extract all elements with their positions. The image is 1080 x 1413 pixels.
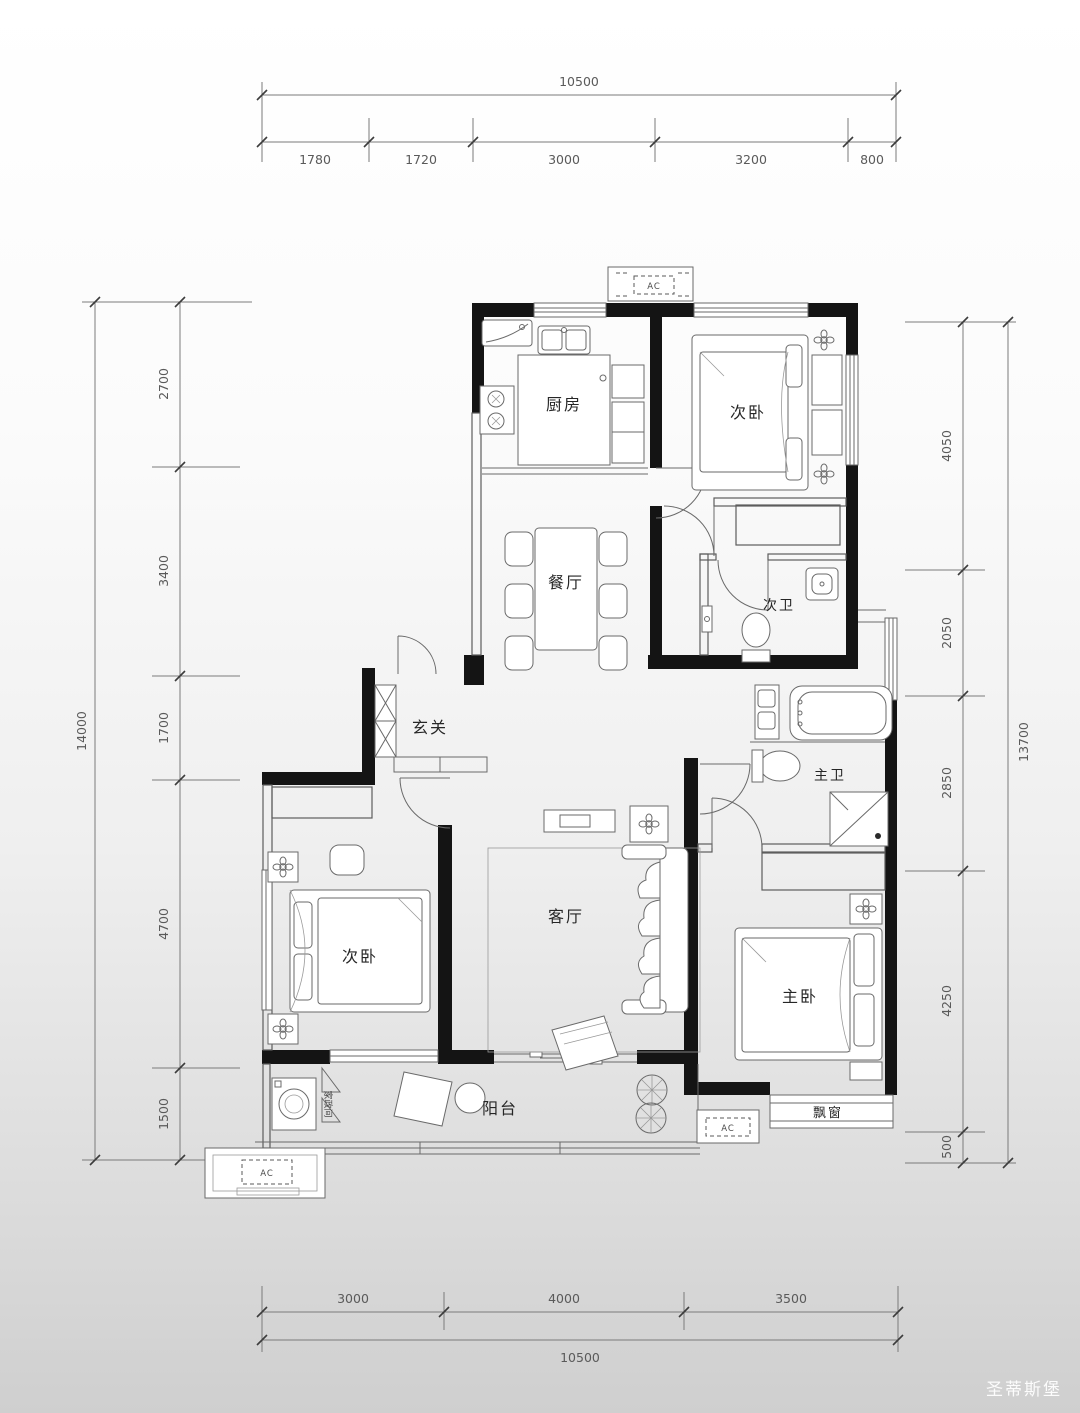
wardrobe-bedroom-left [272, 787, 372, 818]
room-label-bay-window: 飘窗 [813, 1105, 843, 1121]
dim-left-total: 14000 [74, 711, 89, 751]
nightstand [812, 355, 842, 405]
sofa-icon [660, 848, 688, 1012]
dining-furniture [505, 528, 627, 670]
dim-left-seg-4: 4700 [156, 908, 171, 940]
ac-platform-bottom-left: AC [205, 1148, 325, 1198]
nightstand [850, 1062, 882, 1080]
bedroom-top-furniture [692, 330, 842, 490]
bath2-fixtures [702, 568, 838, 662]
ac-unit-bottom-right: AC [697, 1110, 759, 1143]
dim-right-seg-3: 2850 [939, 767, 954, 799]
chair-icon [505, 636, 533, 670]
entry-door-arc [398, 636, 436, 674]
bath1-door-arc [700, 764, 750, 814]
plant-icon [814, 464, 834, 484]
ac-unit-top: AC [608, 267, 693, 301]
kitchen-cabinet [612, 365, 644, 398]
dim-top-seg-4: 3200 [735, 152, 767, 167]
room-label-laundry: 家政间 [322, 1090, 334, 1117]
dim-left-seg-2: 3400 [156, 555, 171, 587]
wardrobe-master [762, 853, 885, 890]
room-label-bedroom-top: 次卧 [730, 403, 766, 422]
floorplan-page: 10500 1780 1720 3000 3200 800 3000 4000 … [0, 0, 1080, 1413]
plant-icon [814, 330, 834, 350]
ac-label: AC [260, 1169, 274, 1179]
room-label-balcony: 阳台 [482, 1099, 518, 1118]
bedroom-top-door-arc [664, 506, 714, 556]
room-label-master: 主卧 [782, 987, 818, 1006]
dimension-left: 14000 2700 3400 1700 4700 1500 [74, 297, 252, 1165]
dim-left-seg-3: 1700 [156, 712, 171, 744]
dim-right-seg-2: 2050 [939, 617, 954, 649]
bedroom-left-furniture [268, 845, 430, 1044]
dim-right-total: 13700 [1016, 722, 1031, 762]
watermark-text: 圣蒂斯堡 [986, 1380, 1062, 1400]
dim-right-seg-1: 4050 [939, 430, 954, 462]
chair-icon [599, 532, 627, 566]
stove-icon [480, 386, 514, 434]
dim-left-seg-5: 1500 [156, 1098, 171, 1130]
dim-bottom-seg-1: 3000 [337, 1291, 369, 1306]
dim-top-seg-2: 1720 [405, 152, 437, 167]
dimension-top: 10500 1780 1720 3000 3200 800 [257, 74, 901, 167]
dim-top-seg-5: 800 [860, 152, 884, 167]
master-door-arc [712, 798, 762, 848]
room-label-foyer: 玄关 [412, 718, 448, 737]
dimension-right: 13700 4050 2050 2850 4250 500 [905, 317, 1031, 1168]
wardrobe-bedroom-top [736, 505, 840, 545]
dim-bottom-seg-3: 3500 [775, 1291, 807, 1306]
room-label-kitchen: 厨房 [546, 395, 582, 414]
bath2-door-arc [718, 560, 768, 610]
fan-icon [636, 1103, 666, 1133]
dim-top-seg-3: 3000 [548, 152, 580, 167]
room-label-bath2: 次卫 [763, 598, 795, 614]
room-label-bedroom-left: 次卧 [342, 947, 378, 966]
room-label-bath1: 主卫 [814, 768, 846, 784]
bedroom-left-door-arc [400, 778, 450, 828]
floorplan-canvas: 10500 1780 1720 3000 3200 800 3000 4000 … [0, 0, 1080, 1413]
stool-icon [330, 845, 364, 875]
room-label-dining: 餐厅 [548, 573, 584, 592]
balcony-table-icon [455, 1083, 485, 1113]
counter-corner-sink [482, 320, 532, 346]
chair-icon [599, 636, 627, 670]
room-label-living: 客厅 [548, 907, 584, 926]
lounge-chair-icon [394, 1072, 452, 1126]
dim-top-total: 10500 [559, 74, 599, 89]
toilet-icon [760, 751, 800, 781]
toilet-icon [742, 613, 770, 647]
nightstand [812, 410, 842, 455]
ac-label: AC [647, 282, 661, 292]
dim-left-seg-1: 2700 [156, 368, 171, 400]
chair-icon [599, 584, 627, 618]
dim-bottom-seg-2: 4000 [548, 1291, 580, 1306]
dim-top-seg-1: 1780 [299, 152, 331, 167]
dim-right-seg-5: 500 [939, 1135, 954, 1159]
floor-drain [702, 606, 712, 632]
side-table [630, 806, 668, 842]
washbasin-icon [806, 568, 838, 600]
chair-icon [505, 532, 533, 566]
dim-right-seg-4: 4250 [939, 985, 954, 1017]
fan-icon [637, 1075, 667, 1105]
living-furniture [488, 806, 700, 1070]
bath1-fixtures [752, 685, 892, 846]
kitchen-fixtures [480, 320, 644, 465]
dim-bottom-total: 10500 [560, 1350, 600, 1365]
dimension-bottom: 3000 4000 3500 10500 [257, 1286, 903, 1365]
ac-label: AC [721, 1124, 735, 1134]
chair-icon [505, 584, 533, 618]
tv-stand-icon [544, 810, 615, 832]
